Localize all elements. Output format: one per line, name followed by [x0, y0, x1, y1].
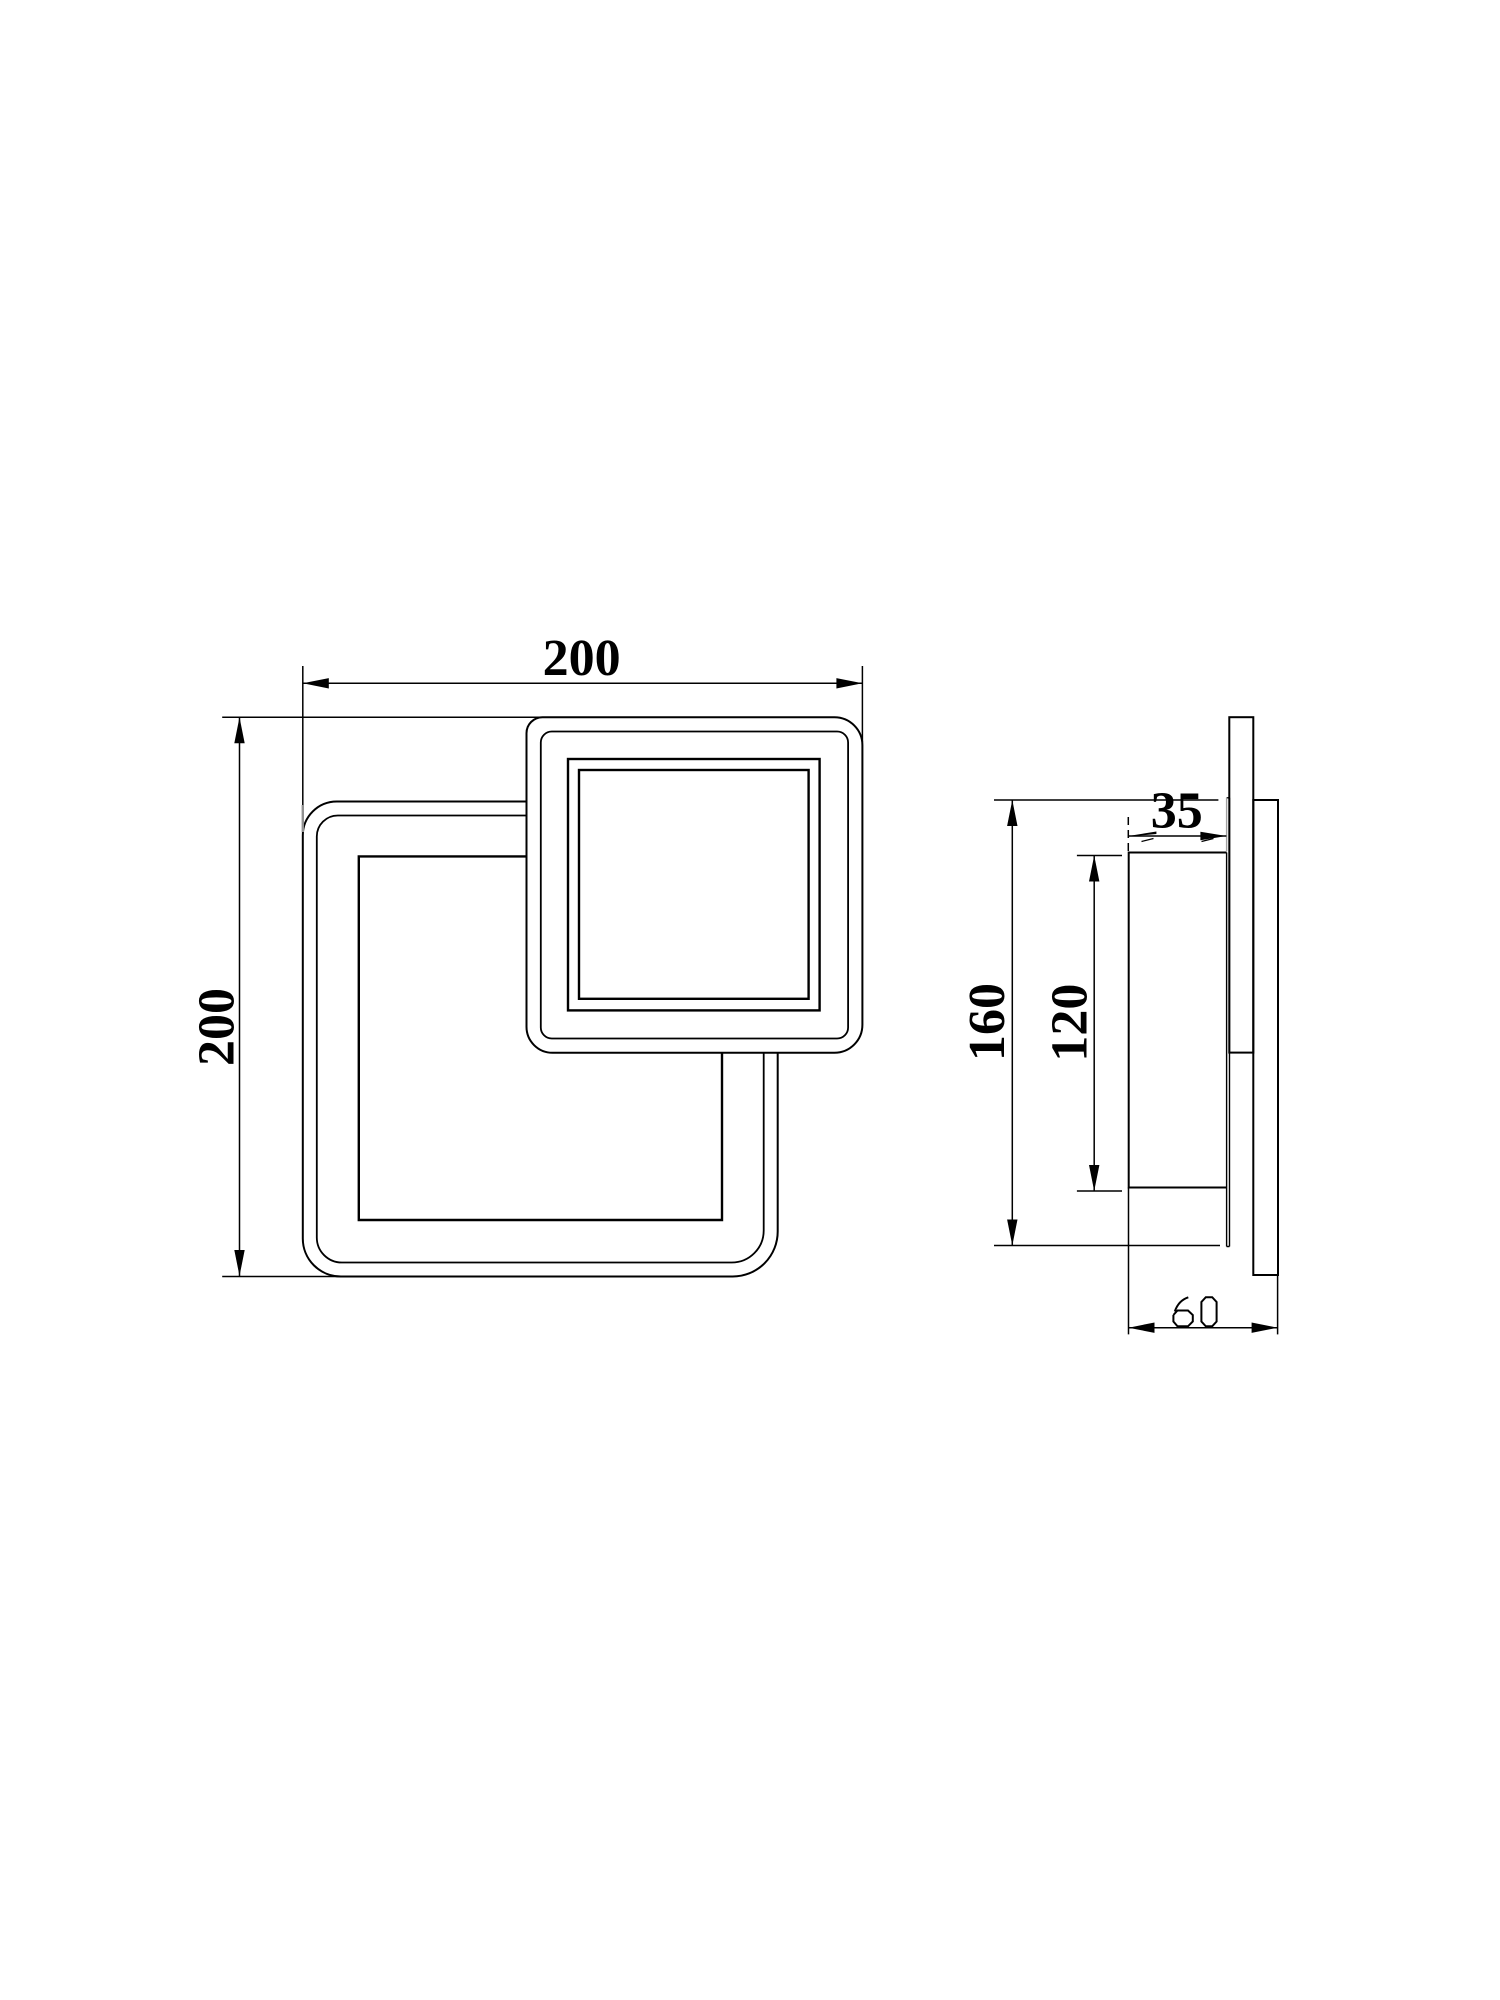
svg-text:200: 200 [189, 988, 246, 1066]
svg-text:120: 120 [1041, 984, 1098, 1062]
svg-text:200: 200 [543, 630, 621, 687]
svg-text:160: 160 [959, 983, 1016, 1061]
svg-text:35: 35 [1151, 783, 1203, 840]
